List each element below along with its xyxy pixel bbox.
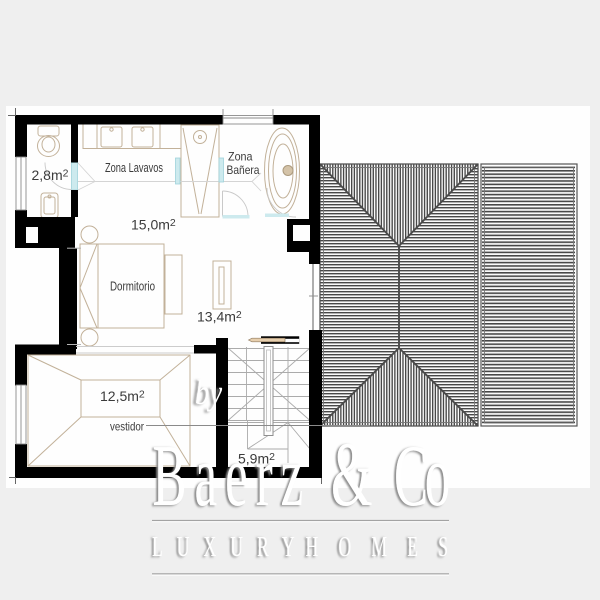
svg-text:Baerz: Baerz <box>153 427 304 525</box>
svg-text:13,4m2: 13,4m2 <box>197 309 242 325</box>
svg-text:by: by <box>195 372 223 411</box>
svg-text:Co: Co <box>394 427 450 525</box>
svg-text:Zona: Zona <box>228 150 253 164</box>
svg-text:15,0m2: 15,0m2 <box>131 217 176 233</box>
svg-text:&: & <box>331 424 372 526</box>
svg-text:vestidor: vestidor <box>110 420 144 434</box>
svg-text:Bañera: Bañera <box>227 163 260 177</box>
svg-text:12,5m2: 12,5m2 <box>100 388 145 404</box>
svg-text:Dormitorio: Dormitorio <box>110 279 155 294</box>
svg-text:Zona Lavavos: Zona Lavavos <box>105 161 163 175</box>
